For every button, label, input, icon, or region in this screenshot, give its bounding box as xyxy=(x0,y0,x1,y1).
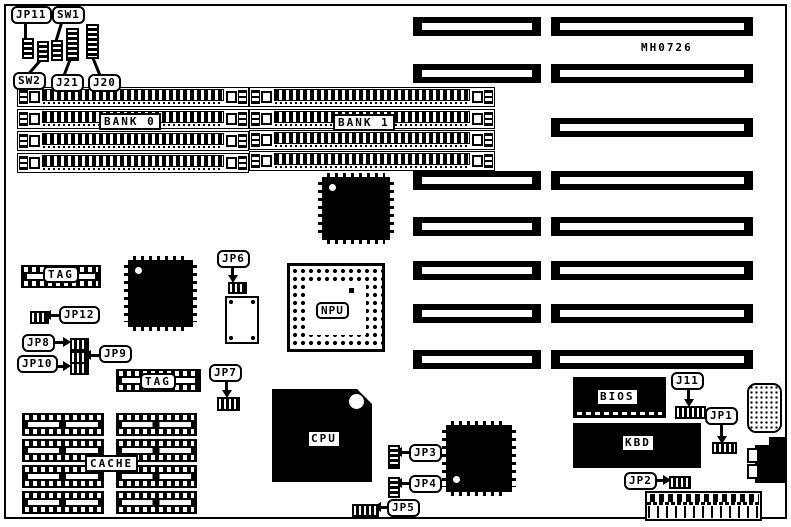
expansion-slot xyxy=(551,217,753,236)
expansion-slot xyxy=(413,304,541,323)
pin1-dot xyxy=(453,476,460,483)
callout-jp2: JP2 xyxy=(624,472,657,490)
kbd-chip: KBD xyxy=(573,423,701,468)
cache-dip-socket xyxy=(116,491,197,514)
simm-socket xyxy=(17,131,249,151)
callout-sw1: SW1 xyxy=(52,6,85,24)
expansion-slot xyxy=(551,118,753,137)
callout-jp3: JP3 xyxy=(409,444,442,462)
callout-jp5: JP5 xyxy=(387,499,420,517)
kbd-label: KBD xyxy=(623,436,653,450)
callout-jp1: JP1 xyxy=(705,407,738,425)
tag0-label: TAG xyxy=(43,266,79,283)
pin1-dot xyxy=(135,267,142,274)
callout-jp9: JP9 xyxy=(99,345,132,363)
simm-socket xyxy=(249,87,495,107)
cache-dip-socket xyxy=(22,413,104,436)
jumper-jp12 xyxy=(30,311,49,324)
jumper-jp7 xyxy=(217,397,240,411)
board-id-text: MH0726 xyxy=(641,41,693,54)
simm-socket xyxy=(249,151,495,171)
expansion-slot xyxy=(413,350,541,369)
qfp-chip-3 xyxy=(446,425,512,492)
jumper-jp1 xyxy=(712,442,737,454)
jumper-j11 xyxy=(675,406,706,419)
bios-label: BIOS xyxy=(598,390,637,404)
simm-socket xyxy=(17,153,249,173)
npu-socket: NPU xyxy=(287,263,385,352)
qfp-chip-2 xyxy=(128,260,193,327)
callout-jp11: JP11 xyxy=(11,6,52,24)
expansion-slot xyxy=(413,217,541,236)
din-tab-1 xyxy=(747,448,759,463)
expansion-slot xyxy=(413,64,541,83)
expansion-slot xyxy=(551,350,753,369)
cache-dip-socket xyxy=(22,491,104,514)
pin1-dot xyxy=(329,184,336,191)
power-connector xyxy=(645,491,762,521)
callout-jp10: JP10 xyxy=(17,355,58,373)
callout-jp6: JP6 xyxy=(217,250,250,268)
jumper-sw2 xyxy=(37,41,49,62)
expansion-slot xyxy=(413,17,541,36)
jumper-jp2 xyxy=(669,476,691,489)
expansion-slot xyxy=(551,17,753,36)
jumper-jp8 xyxy=(70,338,89,351)
jumper-jp4 xyxy=(388,477,400,498)
cpu-hole xyxy=(349,394,364,409)
callout-sw2: SW2 xyxy=(13,72,46,90)
jumper-jp10 xyxy=(70,362,89,375)
speaker xyxy=(747,383,782,433)
callout-j20: J20 xyxy=(88,74,121,92)
expansion-slot xyxy=(413,171,541,190)
expansion-slot xyxy=(551,261,753,280)
jumper-jp11 xyxy=(22,38,34,59)
bank1-label: BANK 1 xyxy=(333,114,395,131)
jumper-j21 xyxy=(66,28,79,61)
cpu-label: CPU xyxy=(309,432,339,446)
expansion-slot xyxy=(551,64,753,83)
jumper-jp5 xyxy=(352,504,379,517)
expansion-slot xyxy=(413,261,541,280)
oscillator-socket xyxy=(225,296,259,344)
cache-dip-socket xyxy=(116,413,197,436)
din-tab-2 xyxy=(747,464,759,479)
expansion-slot xyxy=(551,304,753,323)
callout-jp12: JP12 xyxy=(59,306,100,324)
callout-jp4: JP4 xyxy=(409,475,442,493)
bios-socket-pins xyxy=(577,412,662,415)
callout-j21: J21 xyxy=(51,74,84,92)
jumper-sw1 xyxy=(51,40,63,61)
cpu-chip: CPU xyxy=(272,389,372,482)
bank0-label: BANK 0 xyxy=(99,113,161,130)
simm-socket xyxy=(249,130,495,150)
expansion-slot xyxy=(551,171,753,190)
tag1-label: TAG xyxy=(140,373,176,390)
callout-jp8: JP8 xyxy=(22,334,55,352)
bios-chip: BIOS xyxy=(573,377,666,418)
qfp-chip-1 xyxy=(322,177,390,240)
motherboard-diagram: BANK 0 BANK 1 MH0726 CACHE TAG TAG NPU C… xyxy=(0,0,791,527)
callout-j11: J11 xyxy=(671,372,704,390)
jumper-j20 xyxy=(86,24,99,59)
npu-label: NPU xyxy=(316,302,349,319)
callout-jp7: JP7 xyxy=(209,364,242,382)
jumper-jp6 xyxy=(228,282,247,294)
din-connector xyxy=(755,445,787,483)
jumper-jp3 xyxy=(388,445,400,469)
cache-label: CACHE xyxy=(85,455,138,472)
npu-pin1-dot xyxy=(349,288,354,293)
